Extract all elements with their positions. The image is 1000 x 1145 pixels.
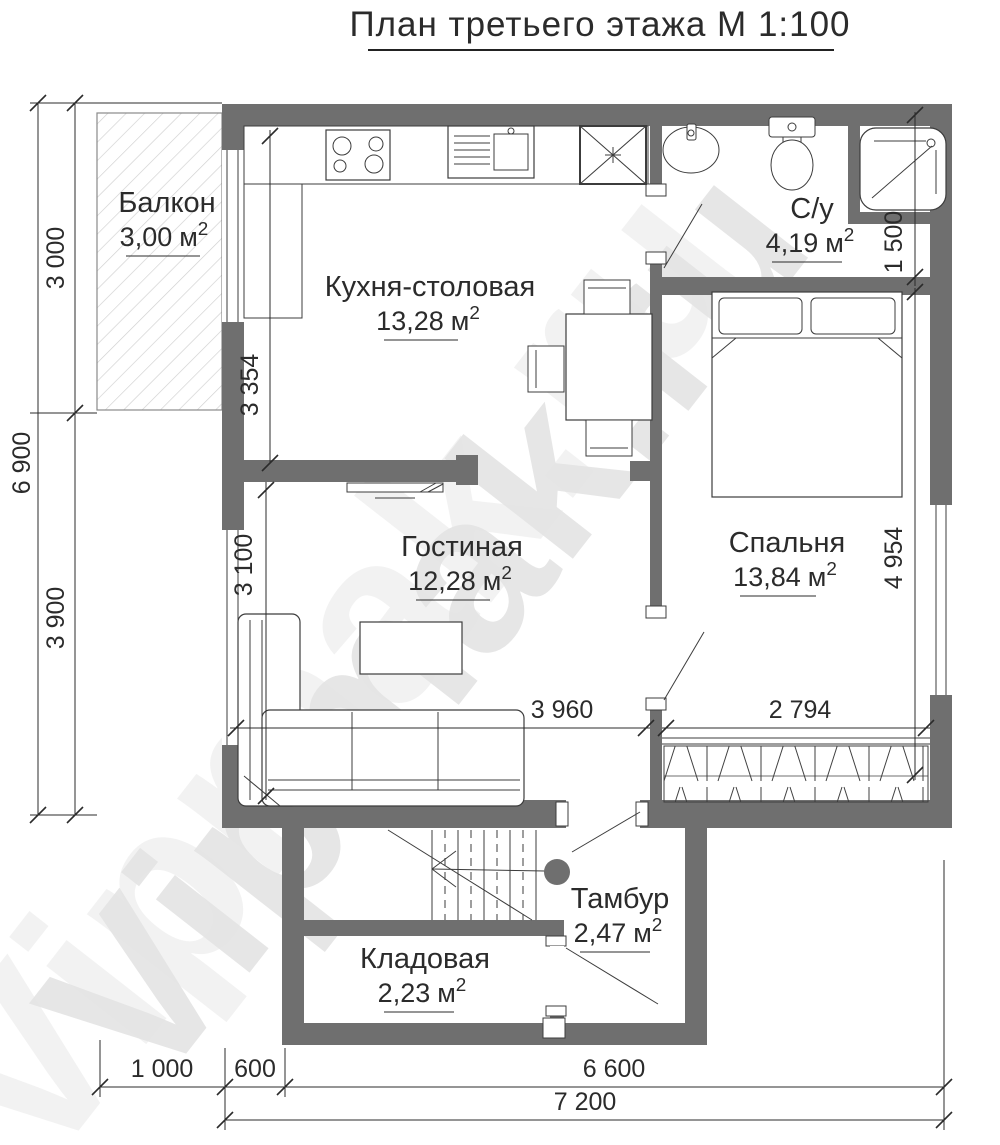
dim-left-lower: 3 900: [42, 587, 70, 650]
bedroom-door: [664, 632, 704, 700]
ventilation-shaft: [580, 126, 646, 184]
stair-direction-line: [432, 869, 545, 871]
dim-left-total: 6 900: [8, 432, 36, 495]
floor-plan-page: Vipmak.ru Vipmak.ru План третьего этажа …: [0, 0, 1000, 1145]
dim-bottom-total: 7 200: [554, 1088, 617, 1116]
svg-text:Кладовая: Кладовая: [360, 943, 490, 975]
svg-text:Гостиная: Гостиная: [401, 531, 523, 563]
svg-text:С/у: С/у: [790, 193, 834, 225]
bedroom-window: [930, 505, 952, 695]
svg-text:12,28м2: 12,28м2: [408, 563, 512, 596]
washbasin: [663, 124, 719, 173]
svg-text:2,47м2: 2,47м2: [574, 915, 663, 948]
svg-text:3,00м2: 3,00м2: [120, 219, 209, 252]
dim-bathroom-depth: 1 500: [880, 211, 908, 274]
svg-text:2,23м2: 2,23м2: [378, 975, 467, 1008]
svg-text:Кухня-столовая: Кухня-столовая: [325, 271, 536, 303]
dim-living-depth: 3 100: [230, 534, 258, 597]
balcony-door-window: [222, 150, 244, 322]
plan-title: План третьего этажа М 1:100: [349, 5, 850, 44]
stove: [326, 130, 390, 180]
dim-bottom-balcony: 1 000: [131, 1055, 194, 1083]
shower-cabin: [860, 128, 946, 210]
svg-text:13,28м2: 13,28м2: [376, 303, 480, 336]
dim-bedroom-depth: 4 954: [880, 527, 908, 590]
room-label-bedroom: Спальня 13,84м2: [729, 527, 846, 596]
kitchen-counter-left: [244, 184, 302, 318]
stair-newel-post: [544, 859, 570, 885]
toilet: [769, 117, 815, 190]
dim-bottom-main: 6 600: [583, 1055, 646, 1083]
room-label-bathroom: С/у 4,19м2: [766, 193, 855, 262]
coffee-table: [360, 622, 462, 674]
svg-text:Спальня: Спальня: [729, 527, 846, 559]
vestibule-door: [572, 812, 640, 852]
staircase: [388, 830, 570, 920]
svg-text:13,84м2: 13,84м2: [733, 559, 837, 592]
floor-plan-drawing: Vipmak.ru Vipmak.ru План третьего этажа …: [0, 0, 1000, 1145]
kitchen-sink: [448, 126, 534, 178]
dim-living-width: 3 960: [531, 696, 594, 724]
svg-text:Балкон: Балкон: [118, 187, 215, 219]
svg-text:4,19м2: 4,19м2: [766, 225, 855, 258]
dim-kitchen-depth: 3 354: [236, 354, 264, 417]
double-bed: [712, 292, 902, 497]
room-label-storage: Кладовая 2,23м2: [360, 943, 490, 1012]
dim-bottom-wall: 600: [234, 1055, 276, 1083]
wardrobe: [662, 738, 930, 802]
room-label-vestibule: Тамбур 2,47м2: [571, 883, 669, 952]
dim-left-upper: 3 000: [42, 227, 70, 290]
storage-door: [566, 948, 658, 1004]
svg-text:Тамбур: Тамбур: [571, 883, 669, 915]
balcony-deck: [97, 113, 222, 410]
dim-wardrobe-width: 2 794: [769, 696, 832, 724]
